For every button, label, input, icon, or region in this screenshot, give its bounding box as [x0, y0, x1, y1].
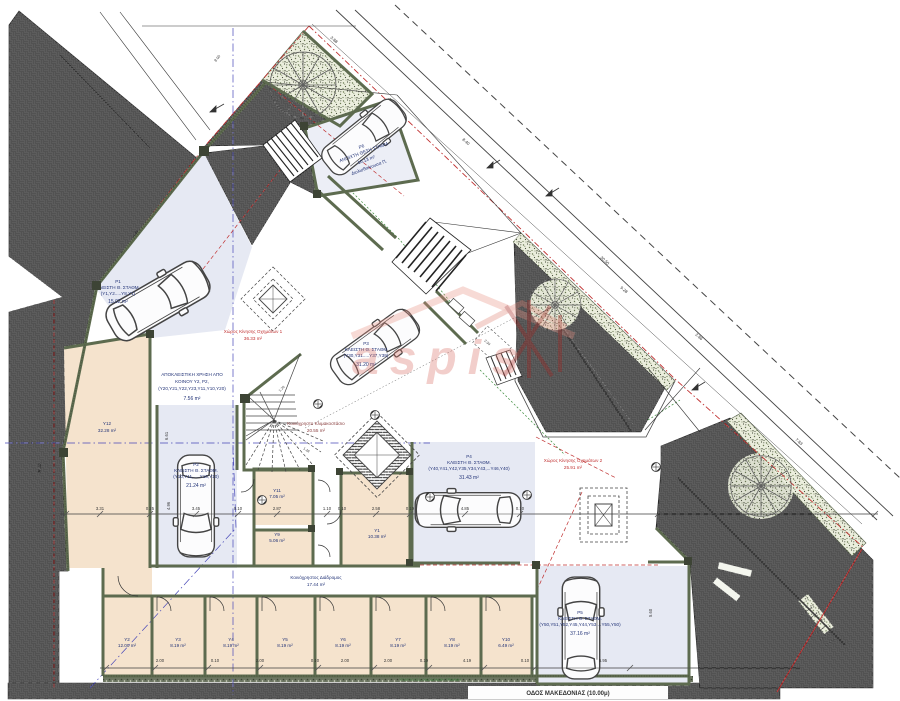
svg-text:2.00: 2.00 [256, 658, 265, 663]
svg-text:8.19 m²: 8.19 m² [390, 643, 406, 648]
svg-text:P5: P5 [577, 610, 583, 615]
svg-text:15.02 m²: 15.02 m² [108, 299, 128, 305]
svg-text:36.33 m²: 36.33 m² [244, 336, 263, 341]
svg-text:6.49 m²: 6.49 m² [498, 643, 514, 648]
svg-text:2.87: 2.87 [273, 506, 282, 511]
svg-text:2.00: 2.00 [384, 658, 393, 663]
svg-text:7.56 m²: 7.56 m² [184, 396, 201, 402]
svg-text:Υ12: Υ12 [103, 421, 112, 426]
svg-text:0.10: 0.10 [406, 506, 415, 511]
svg-text:(Υ40,Υ41,Υ42,Υ35,Υ34,Υ43,...Υ4: (Υ40,Υ41,Υ42,Υ35,Υ34,Υ43,...Υ46,Υ40) [428, 466, 510, 471]
svg-text:ΚΛΕΙΣΤΗ Θ. ΣΤΑΘΜ.: ΚΛΕΙΣΤΗ Θ. ΣΤΑΘΜ. [447, 460, 491, 465]
svg-text:4.19: 4.19 [463, 658, 472, 663]
svg-text:Υ9: Υ9 [274, 532, 280, 537]
svg-text:ΚΛΕΙΣΤΗ Θ. ΣΤΑΘΜ.: ΚΛΕΙΣΤΗ Θ. ΣΤΑΘΜ. [96, 285, 140, 290]
svg-text:P2: P2 [193, 462, 199, 467]
svg-text:ΚΟΙΝΟΥ Υ2, Ρ2,: ΚΟΙΝΟΥ Υ2, Ρ2, [175, 379, 209, 384]
svg-text:Χώρος Κίνησης Οχημάτων 2: Χώρος Κίνησης Οχημάτων 2 [544, 457, 603, 463]
svg-text:8.19 m²: 8.19 m² [444, 643, 460, 648]
svg-text:Κοινόχρηστο Κλιμακοστάσιο: Κοινόχρηστο Κλιμακοστάσιο [287, 420, 345, 426]
svg-text:6.61: 6.61 [164, 431, 169, 440]
svg-text:17.44 m²: 17.44 m² [307, 582, 326, 587]
svg-text:0.10: 0.10 [234, 506, 243, 511]
svg-text:2.00: 2.00 [341, 658, 350, 663]
svg-text:ΥΠΑΡΧΟΥΣΑ ΟΙΚΟΔΟΜΙΚΗ ΓΡΑΜΜΗ: ΥΠΑΡΧΟΥΣΑ ΟΙΚΟΔΟΜΙΚΗ ΓΡΑΜΜΗ [399, 678, 461, 682]
svg-text:Υ1: Υ1 [374, 528, 380, 533]
svg-text:4.96: 4.96 [166, 501, 171, 510]
svg-text:Κοινόχρηστος Διάδρομος: Κοινόχρηστος Διάδρομος [290, 574, 342, 580]
svg-text:0.10: 0.10 [420, 658, 429, 663]
svg-text:0.10: 0.10 [338, 506, 347, 511]
svg-text:(Υ50,Υ51,Υ52,Υ45,Υ44,Υ53....Υ5: (Υ50,Υ51,Υ52,Υ45,Υ44,Υ53....Υ55,Υ50) [539, 622, 621, 627]
svg-text:0.10: 0.10 [521, 658, 530, 663]
svg-text:Υ3: Υ3 [175, 637, 181, 642]
svg-text:ΚΛΕΙΣΤΗ Θ. ΣΤΑΘΜ.: ΚΛΕΙΣΤΗ Θ. ΣΤΑΘΜ. [174, 468, 218, 473]
svg-text:25.91 m²: 25.91 m² [564, 465, 583, 470]
svg-text:10.38 m²: 10.38 m² [368, 534, 387, 539]
svg-text:32.28 m²: 32.28 m² [98, 428, 117, 433]
svg-text:Υ7: Υ7 [395, 637, 401, 642]
svg-text:0.25: 0.25 [146, 506, 155, 511]
svg-text:(Υ20,Υ21,Υ22,Υ23,Υ11,Υ10,Υ20): (Υ20,Υ21,Υ22,Υ23,Υ11,Υ10,Υ20) [158, 386, 226, 391]
svg-text:3.31: 3.31 [96, 506, 105, 511]
svg-text:2.58: 2.58 [372, 506, 381, 511]
svg-text:0.10: 0.10 [211, 658, 220, 663]
svg-text:Υ5: Υ5 [282, 637, 288, 642]
svg-text:3.45: 3.45 [192, 506, 201, 511]
svg-text:8.19 m²: 8.19 m² [335, 643, 351, 648]
svg-text:Υ6: Υ6 [340, 637, 346, 642]
svg-text:Υ2: Υ2 [124, 637, 130, 642]
svg-text:21.24 m²: 21.24 m² [186, 483, 206, 489]
svg-text:2.00: 2.00 [156, 658, 165, 663]
svg-text:(Υ10,Υ11,.....Υ16,Υ10): (Υ10,Υ11,.....Υ16,Υ10) [173, 474, 219, 479]
svg-text:5.60: 5.60 [648, 608, 653, 617]
svg-text:ΟΔΟΣ ΜΑΚΕΔΟΝΙΑΣ (10.00μ): ΟΔΟΣ ΜΑΚΕΔΟΝΙΑΣ (10.00μ) [526, 691, 609, 697]
svg-text:31.43 m²: 31.43 m² [459, 475, 479, 481]
svg-text:Χώρος Κίνησης Οχημάτων 1: Χώρος Κίνησης Οχημάτων 1 [224, 328, 283, 334]
svg-text:P1: P1 [115, 279, 121, 284]
svg-text:8.19 m²: 8.19 m² [223, 643, 239, 648]
svg-text:7.05 m²: 7.05 m² [269, 494, 285, 499]
svg-text:ΑΠΟΚΛΕΙΣΤΙΚΗ ΧΡΗΣΗ ΑΠΟ: ΑΠΟΚΛΕΙΣΤΙΚΗ ΧΡΗΣΗ ΑΠΟ [161, 372, 223, 377]
svg-text:ΚΛΕΙΣΤΗ Θ. ΣΤΑΘΜ.: ΚΛΕΙΣΤΗ Θ. ΣΤΑΘΜ. [558, 616, 602, 621]
svg-text:0.10: 0.10 [516, 506, 525, 511]
svg-text:8.19 m²: 8.19 m² [277, 643, 293, 648]
svg-text:0.10: 0.10 [311, 658, 320, 663]
svg-text:10.13: 10.13 [37, 462, 42, 473]
svg-text:20.55 m²: 20.55 m² [307, 428, 326, 433]
svg-text:37.16 m²: 37.16 m² [570, 631, 590, 637]
svg-text:Υ11: Υ11 [273, 488, 281, 493]
svg-text:12.00 m²: 12.00 m² [118, 643, 137, 648]
svg-text:8.19 m²: 8.19 m² [170, 643, 186, 648]
svg-text:P4: P4 [466, 454, 472, 459]
svg-text:Υ8: Υ8 [449, 637, 455, 642]
svg-text:1.10: 1.10 [323, 506, 332, 511]
svg-text:Υ10: Υ10 [502, 637, 511, 642]
svg-text:(Υ1,Υ2.....Υ8,Υ1): (Υ1,Υ2.....Υ8,Υ1) [101, 291, 136, 296]
svg-text:Υ4: Υ4 [228, 637, 234, 642]
svg-text:4.85: 4.85 [461, 506, 470, 511]
svg-text:aspis: aspis [352, 332, 530, 385]
svg-text:5.06 m²: 5.06 m² [269, 538, 285, 543]
svg-text:6.95: 6.95 [599, 658, 608, 663]
